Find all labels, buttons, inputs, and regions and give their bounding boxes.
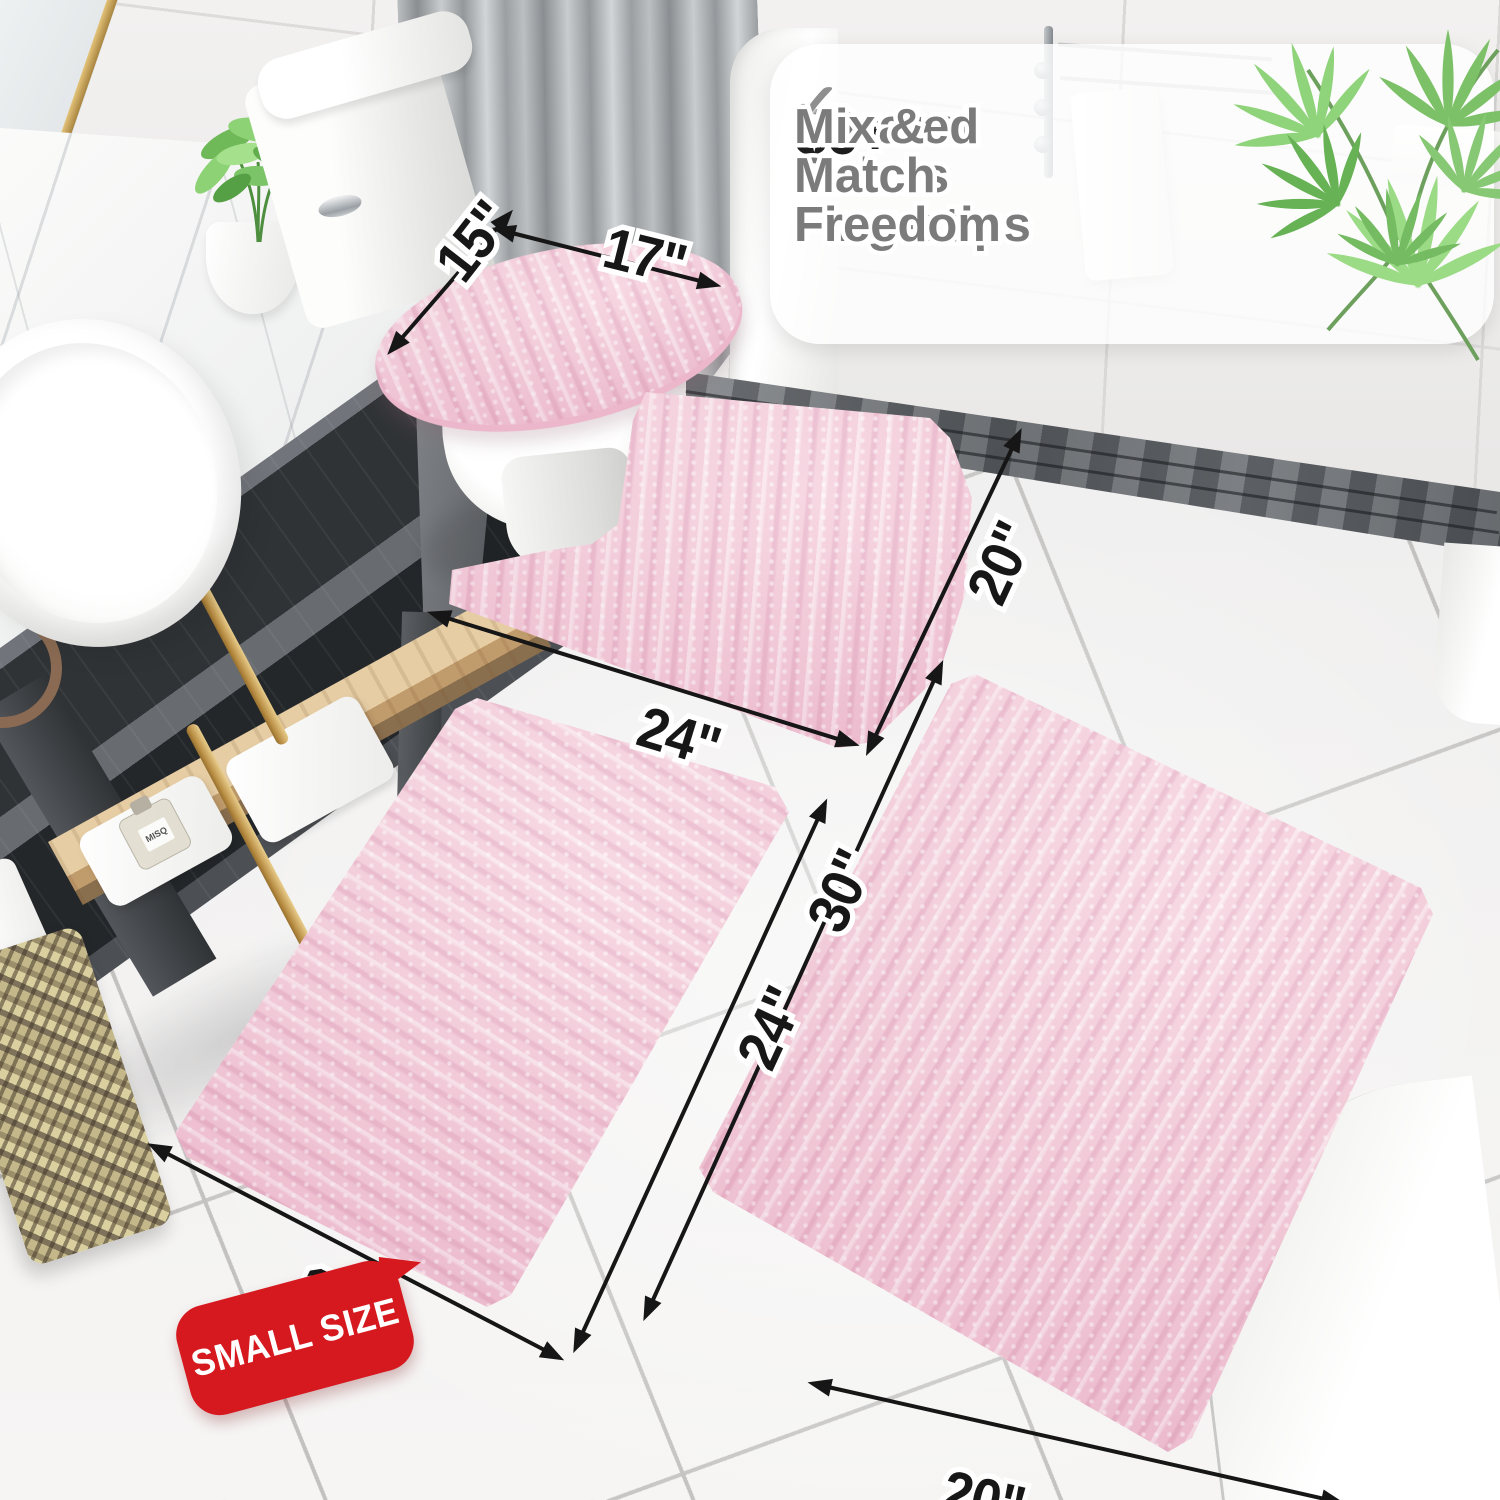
bathroom-product-scene: MISQ xyxy=(0,0,1500,1500)
badge-label: SMALL SIZE xyxy=(187,1290,404,1386)
feature-text-label: Mix & Match Freedom xyxy=(794,103,1001,250)
bathtub-side xyxy=(1432,542,1500,725)
perfume-bottle-label: MISQ xyxy=(137,817,175,852)
hanging-plant xyxy=(1248,30,1500,365)
